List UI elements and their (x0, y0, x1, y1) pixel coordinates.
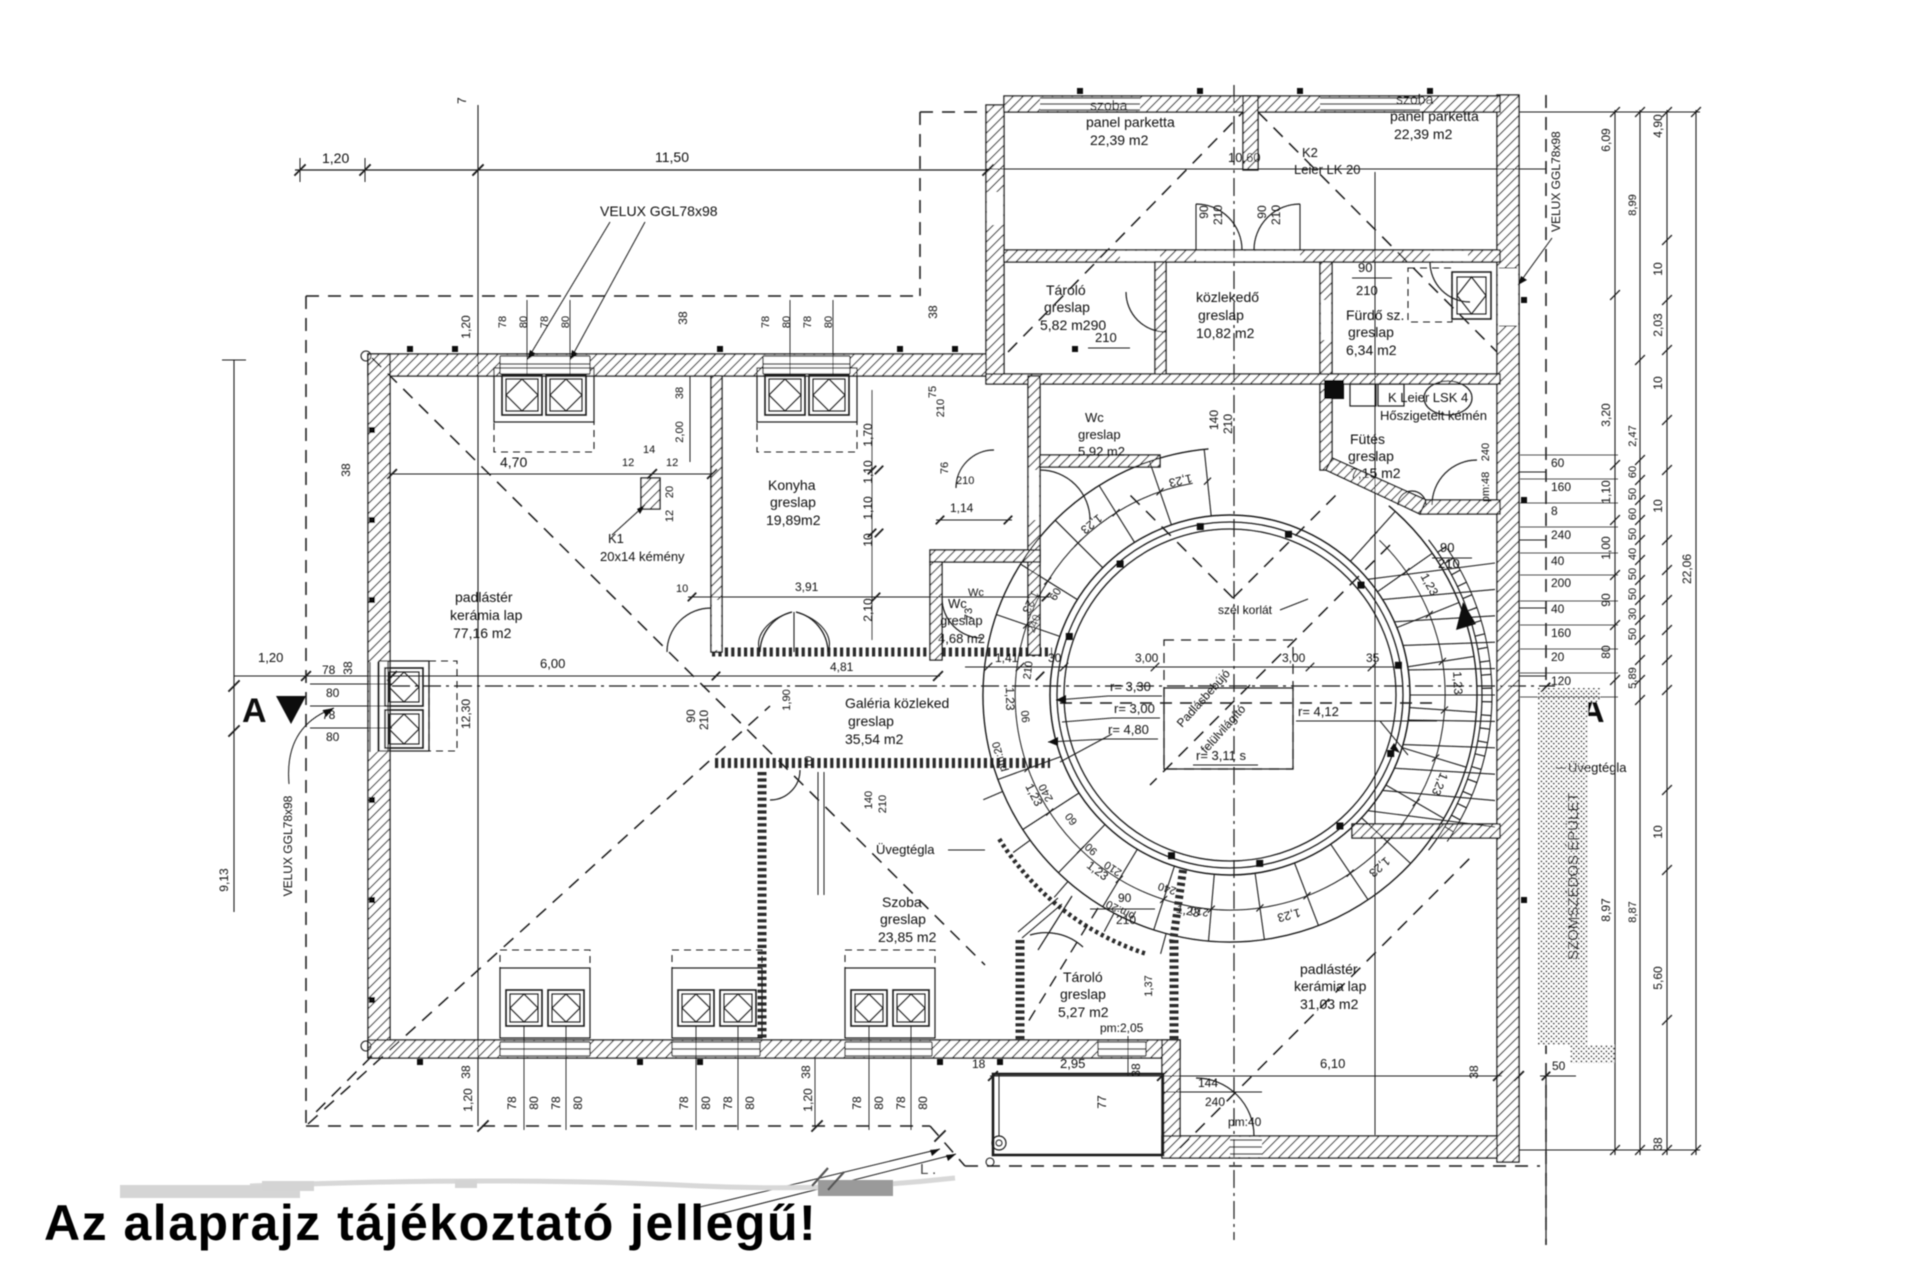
svg-text:greslap: greslap (848, 713, 894, 729)
svg-text:6,09: 6,09 (1599, 128, 1613, 152)
svg-text:10: 10 (1651, 376, 1665, 390)
svg-text:35: 35 (1366, 651, 1380, 665)
svg-text:38: 38 (674, 387, 686, 399)
svg-text:50: 50 (1627, 588, 1639, 600)
svg-text:40: 40 (1627, 548, 1639, 560)
svg-text:80: 80 (743, 1096, 757, 1110)
svg-text:210: 210 (1095, 330, 1117, 345)
svg-text:kerámia lap: kerámia lap (450, 607, 523, 623)
svg-text:10: 10 (1651, 262, 1665, 276)
svg-text:78: 78 (322, 708, 336, 722)
svg-text:2,10: 2,10 (861, 598, 875, 622)
svg-text:10: 10 (676, 583, 688, 595)
svg-text:4,68 m2: 4,68 m2 (938, 631, 985, 646)
svg-text:Wc: Wc (1085, 410, 1104, 425)
svg-text:35,54 m2: 35,54 m2 (845, 731, 904, 747)
svg-text:Fütés: Fütés (1350, 431, 1385, 447)
svg-text:90: 90 (684, 709, 698, 723)
svg-text:78: 78 (802, 316, 814, 328)
svg-text:78: 78 (721, 1096, 735, 1110)
svg-text:3,91: 3,91 (795, 580, 819, 594)
svg-text:10: 10 (861, 533, 875, 547)
svg-text:Üvegtégla: Üvegtégla (876, 842, 935, 857)
svg-text:12: 12 (622, 457, 634, 469)
svg-text:VELUX GGL78x98: VELUX GGL78x98 (1549, 131, 1563, 232)
svg-text:Üvegtégla: Üvegtégla (1568, 760, 1627, 775)
svg-text:1,90: 1,90 (781, 689, 793, 710)
svg-text:200: 200 (1551, 576, 1571, 590)
svg-text:L .: L . (920, 1161, 936, 1178)
svg-text:80: 80 (699, 1096, 713, 1110)
svg-text:38: 38 (341, 661, 355, 675)
svg-text:210: 210 (1221, 414, 1235, 434)
svg-text:3,00: 3,00 (1135, 651, 1159, 665)
svg-text:greslap: greslap (1348, 324, 1394, 340)
svg-text:panel parketta: panel parketta (1086, 114, 1175, 130)
svg-text:r= 3,11 s: r= 3,11 s (1196, 748, 1246, 763)
svg-text:2,95: 2,95 (1060, 1056, 1085, 1071)
svg-text:Szoba: Szoba (882, 894, 922, 910)
svg-text:22,39 m2: 22,39 m2 (1394, 126, 1453, 142)
svg-text:73: 73 (963, 608, 975, 620)
svg-text:12,30: 12,30 (459, 699, 473, 729)
svg-text:közlekedő: közlekedő (1196, 289, 1259, 305)
svg-text:kerámia lap: kerámia lap (1294, 978, 1367, 994)
svg-text:60: 60 (1627, 508, 1639, 520)
svg-text:pm:48: pm:48 (1480, 472, 1492, 503)
svg-text:80: 80 (571, 1096, 585, 1110)
svg-text:11,50: 11,50 (655, 149, 689, 165)
svg-text:1,70: 1,70 (861, 423, 875, 447)
svg-text:5,27 m2: 5,27 m2 (1058, 1004, 1109, 1020)
svg-text:greslap: greslap (1198, 307, 1244, 323)
svg-text:90: 90 (1118, 891, 1132, 905)
svg-text:23,85 m2: 23,85 m2 (878, 929, 937, 945)
svg-text:38: 38 (1651, 1137, 1665, 1151)
svg-text:12: 12 (666, 457, 678, 469)
svg-text:1,23: 1,23 (1450, 671, 1465, 695)
svg-text:5,92 m2: 5,92 m2 (1078, 444, 1125, 459)
svg-text:18: 18 (972, 1057, 986, 1071)
svg-text:Hőszigetelt kémén: Hőszigetelt kémén (1380, 408, 1487, 423)
svg-text:50: 50 (1552, 1059, 1566, 1073)
svg-text:r= 4,12: r= 4,12 (1298, 704, 1339, 719)
svg-text:10: 10 (1651, 499, 1665, 513)
svg-text:75: 75 (927, 386, 939, 398)
svg-text:1,10: 1,10 (861, 460, 875, 484)
svg-text:greslap: greslap (1060, 986, 1106, 1002)
svg-text:greslap: greslap (1078, 427, 1121, 442)
svg-text:1,23: 1,23 (1003, 687, 1017, 711)
svg-text:Galéria közleked: Galéria közleked (845, 695, 949, 711)
svg-text:22,39 m2: 22,39 m2 (1090, 132, 1149, 148)
svg-text:12: 12 (664, 510, 676, 522)
svg-text:78: 78 (505, 1096, 519, 1110)
svg-text:160: 160 (1551, 626, 1571, 640)
svg-text:78: 78 (322, 663, 336, 677)
svg-text:210: 210 (935, 399, 947, 417)
svg-text:1,10: 1,10 (861, 496, 875, 520)
svg-text:240: 240 (1480, 443, 1492, 461)
svg-text:2,00: 2,00 (674, 421, 686, 442)
svg-text:31,03 m2: 31,03 m2 (1300, 996, 1359, 1012)
svg-text:120: 120 (1551, 674, 1571, 688)
svg-text:1,20: 1,20 (459, 315, 473, 339)
svg-text:r= 3,00: r= 3,00 (1114, 701, 1155, 716)
svg-text:210: 210 (1356, 283, 1378, 298)
svg-text:240: 240 (1205, 1095, 1225, 1109)
svg-text:19,89m2: 19,89m2 (766, 512, 821, 528)
svg-text:90: 90 (1358, 260, 1372, 275)
svg-text:38: 38 (926, 305, 940, 319)
svg-text:90: 90 (1255, 205, 1269, 219)
svg-text:90: 90 (1020, 710, 1033, 723)
svg-text:140: 140 (1207, 410, 1221, 430)
svg-text:K1: K1 (608, 531, 624, 546)
svg-text:90: 90 (1197, 205, 1211, 219)
svg-text:1,20: 1,20 (322, 150, 349, 166)
svg-text:2,47: 2,47 (1627, 425, 1639, 446)
svg-text:210: 210 (697, 710, 711, 730)
svg-text:38: 38 (1467, 1065, 1481, 1079)
svg-text:greslap: greslap (880, 911, 926, 927)
svg-text:1,00: 1,00 (1599, 536, 1613, 560)
svg-text:1,37: 1,37 (1143, 975, 1155, 996)
svg-text:210: 210 (1116, 913, 1136, 927)
svg-text:szoba: szoba (1090, 97, 1128, 113)
svg-text:78: 78 (894, 1096, 908, 1110)
svg-text:8,99: 8,99 (1627, 194, 1639, 215)
svg-text:60: 60 (1627, 466, 1639, 478)
svg-text:80: 80 (916, 1096, 930, 1110)
svg-text:padlástér: padlástér (455, 589, 513, 605)
svg-text:7,15 m2: 7,15 m2 (1350, 465, 1401, 481)
svg-text:4,90: 4,90 (1651, 114, 1665, 138)
svg-text:40: 40 (1551, 602, 1565, 616)
svg-text:38: 38 (1129, 1063, 1143, 1077)
svg-text:90: 90 (1440, 540, 1454, 555)
svg-text:20: 20 (664, 486, 676, 498)
svg-text:8: 8 (1551, 504, 1558, 518)
svg-text:panel parketta: panel parketta (1390, 108, 1479, 124)
svg-text:140: 140 (863, 791, 875, 809)
svg-text:80: 80 (781, 316, 793, 328)
svg-text:VELUX GGL78x98: VELUX GGL78x98 (600, 203, 718, 219)
svg-text:240: 240 (1551, 528, 1571, 542)
svg-text:1,14: 1,14 (950, 501, 974, 515)
svg-text:greslap: greslap (1348, 448, 1394, 464)
svg-text:7: 7 (455, 97, 469, 104)
svg-text:160: 160 (1551, 480, 1571, 494)
svg-text:50: 50 (1627, 488, 1639, 500)
svg-text:20x14 kémény: 20x14 kémény (600, 549, 685, 564)
svg-text:Az alaprajz tájékoztató jelleg: Az alaprajz tájékoztató jellegű! (44, 1195, 817, 1251)
svg-text:10,82 m2: 10,82 m2 (1196, 325, 1255, 341)
svg-text:6,00: 6,00 (540, 656, 565, 671)
svg-text:Wc: Wc (968, 587, 984, 599)
svg-text:210: 210 (1190, 904, 1210, 918)
svg-text:210: 210 (1269, 205, 1283, 225)
svg-text:4,70: 4,70 (500, 454, 527, 470)
svg-text:80: 80 (1599, 645, 1613, 659)
svg-text:4,81: 4,81 (830, 660, 854, 674)
svg-text:K2: K2 (1302, 145, 1318, 160)
svg-text:szél korlát: szél korlát (1218, 603, 1273, 617)
svg-text:78: 78 (549, 1096, 563, 1110)
svg-text:210: 210 (956, 475, 974, 487)
svg-text:90: 90 (1599, 593, 1613, 607)
svg-text:80: 80 (326, 686, 340, 700)
svg-text:77,16 m2: 77,16 m2 (453, 625, 512, 641)
svg-text:50: 50 (1627, 528, 1639, 540)
svg-text:1,20: 1,20 (258, 650, 283, 665)
svg-text:9,13: 9,13 (217, 868, 231, 892)
svg-text:50: 50 (1627, 568, 1639, 580)
svg-text:Konyha: Konyha (768, 477, 816, 493)
svg-text:76: 76 (939, 462, 951, 474)
svg-text:210: 210 (1211, 205, 1225, 225)
svg-text:10,60: 10,60 (1228, 150, 1261, 165)
svg-text:30: 30 (1048, 651, 1062, 665)
svg-text:10: 10 (1651, 825, 1665, 839)
svg-text:38: 38 (799, 1065, 813, 1079)
svg-text:greslap: greslap (940, 613, 983, 628)
svg-text:padlástér: padlástér (1300, 961, 1358, 977)
svg-text:78: 78 (760, 316, 772, 328)
svg-text:60: 60 (1551, 456, 1565, 470)
svg-text:78: 78 (497, 316, 509, 328)
svg-text:77: 77 (1095, 1095, 1109, 1109)
svg-text:8,97: 8,97 (1599, 898, 1613, 922)
svg-text:10: 10 (803, 756, 815, 768)
svg-text:30: 30 (1627, 608, 1639, 620)
svg-text:38: 38 (676, 311, 690, 325)
svg-text:78: 78 (850, 1096, 864, 1110)
svg-text:50: 50 (1627, 628, 1639, 640)
svg-text:r= 3,30: r= 3,30 (1110, 679, 1151, 694)
svg-text:6,10: 6,10 (1320, 1056, 1345, 1071)
svg-text:6,34 m2: 6,34 m2 (1346, 342, 1397, 358)
svg-text:VELUX GGL78x98: VELUX GGL78x98 (281, 795, 295, 896)
svg-text:40: 40 (1551, 554, 1565, 568)
svg-text:1,20: 1,20 (461, 1088, 475, 1112)
svg-text:78: 78 (677, 1096, 691, 1110)
svg-text:pm:2,05: pm:2,05 (1100, 1021, 1144, 1035)
svg-text:80: 80 (872, 1096, 886, 1110)
svg-text:80: 80 (518, 316, 530, 328)
svg-text:8,87: 8,87 (1627, 901, 1639, 922)
svg-text:r= 4,80: r= 4,80 (1108, 722, 1149, 737)
svg-text:78: 78 (539, 316, 551, 328)
svg-text:K Leier LSK 4: K Leier LSK 4 (1388, 390, 1468, 405)
svg-text:A: A (242, 692, 267, 730)
svg-text:5,89: 5,89 (1627, 667, 1639, 688)
svg-text:5,60: 5,60 (1651, 966, 1665, 990)
svg-text:Fürdő sz.: Fürdő sz. (1346, 307, 1404, 323)
svg-text:1,41: 1,41 (995, 651, 1019, 665)
svg-text:144: 144 (1198, 1076, 1218, 1090)
svg-text:210: 210 (877, 795, 889, 813)
svg-text:14: 14 (643, 444, 655, 456)
svg-text:greslap: greslap (1044, 299, 1090, 315)
svg-text:2,03: 2,03 (1651, 313, 1665, 337)
svg-text:38: 38 (339, 463, 353, 477)
svg-text:3,20: 3,20 (1599, 403, 1613, 427)
svg-text:20: 20 (1551, 650, 1565, 664)
svg-text:Tároló: Tároló (1063, 969, 1103, 985)
svg-text:1,20: 1,20 (801, 1088, 815, 1112)
svg-text:22,06: 22,06 (1680, 554, 1694, 584)
svg-text:38: 38 (459, 1065, 473, 1079)
svg-text:pm:40: pm:40 (1228, 1115, 1262, 1129)
svg-text:1,10: 1,10 (1599, 480, 1613, 504)
svg-text:SZOMSZÉDOS ÉPÜLET: SZOMSZÉDOS ÉPÜLET (1564, 792, 1582, 960)
svg-text:Tároló: Tároló (1046, 282, 1086, 298)
svg-text:80: 80 (527, 1096, 541, 1110)
svg-text:greslap: greslap (770, 494, 816, 510)
svg-text:3,00: 3,00 (1282, 651, 1306, 665)
svg-text:80: 80 (326, 730, 340, 744)
